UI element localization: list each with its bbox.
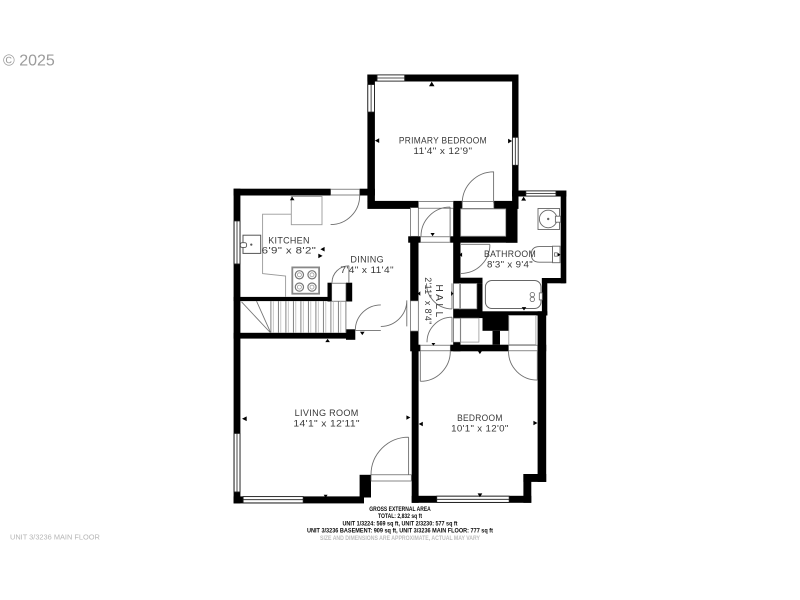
svg-text:LIVING ROOM: LIVING ROOM [295, 408, 359, 418]
svg-text:PRIMARY BEDROOM: PRIMARY BEDROOM [399, 135, 487, 145]
svg-text:SIZE AND DIMENSIONS ARE APPROX: SIZE AND DIMENSIONS ARE APPROXIMATE, ACT… [320, 535, 481, 542]
svg-text:UNIT 3/3236 MAIN FLOOR: UNIT 3/3236 MAIN FLOOR [10, 533, 100, 542]
svg-text:TOTAL: 2,832 sq ft: TOTAL: 2,832 sq ft [378, 513, 422, 520]
svg-text:7'4" x 11'4": 7'4" x 11'4" [340, 265, 394, 275]
svg-text:© 2025: © 2025 [3, 53, 55, 70]
svg-text:UNIT 1/3224: 569 sq ft, UNIT 2: UNIT 1/3224: 569 sq ft, UNIT 2/3230: 577… [343, 520, 458, 527]
svg-text:10'1" x 12'0": 10'1" x 12'0" [451, 423, 509, 433]
svg-text:UNIT 3/3236 BASEMENT: 909 sq f: UNIT 3/3236 BASEMENT: 909 sq ft, UNIT 3/… [307, 528, 493, 535]
svg-text:GROSS EXTERNAL AREA: GROSS EXTERNAL AREA [369, 506, 431, 513]
svg-text:BATHROOM: BATHROOM [484, 249, 536, 259]
svg-text:KITCHEN: KITCHEN [268, 235, 310, 245]
svg-text:8'3" x 9'4": 8'3" x 9'4" [487, 260, 533, 270]
svg-text:DINING: DINING [350, 254, 384, 264]
svg-text:11'4" x 12'9": 11'4" x 12'9" [413, 146, 472, 156]
svg-text:BEDROOM: BEDROOM [457, 413, 503, 423]
svg-text:6'9" x 8'2": 6'9" x 8'2" [262, 246, 317, 256]
svg-text:14'1" x 12'11": 14'1" x 12'11" [293, 418, 360, 428]
svg-text:HALL: HALL [433, 284, 444, 319]
svg-text:2'11" x 8'4": 2'11" x 8'4" [423, 277, 433, 325]
